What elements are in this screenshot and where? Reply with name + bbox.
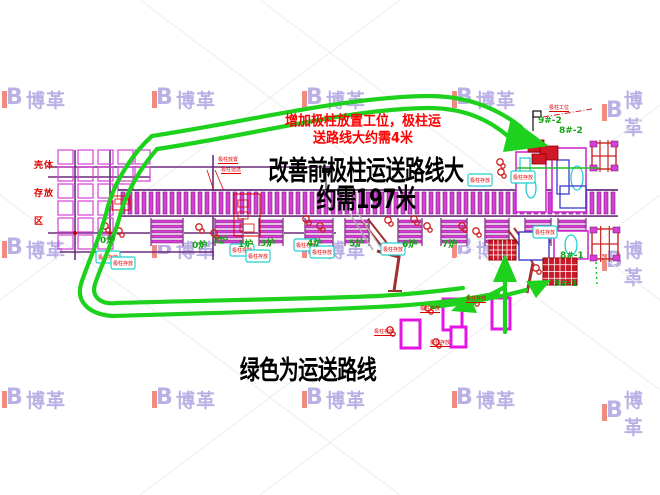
storage-rack-cell — [78, 235, 93, 249]
cyan-tag-text: 极柱存放 — [248, 253, 268, 260]
factory-layout-diagram: B博革B博革B博革B博革B博革B博革B博革B博革B博革B博革B博革B博革B博革B… — [0, 0, 660, 495]
branch-conveyor-stripe — [346, 220, 368, 223]
machine-hatch-pad — [611, 165, 618, 171]
cyan-tag-text: 极柱存放 — [312, 249, 332, 256]
main-conveyor-bar — [205, 192, 209, 214]
furnace-label: 4炉 — [307, 240, 322, 249]
branch-conveyor-stripe — [486, 225, 508, 228]
storage-rack-cell — [58, 184, 73, 198]
branch-conveyor-stripe — [559, 220, 585, 223]
branch-conveyor-stripe — [306, 230, 332, 233]
branch-conveyor-stripe — [152, 230, 182, 233]
main-conveyor-bar — [191, 192, 195, 214]
furnace-label: 3炉 — [260, 240, 275, 249]
main-conveyor-bar — [142, 192, 146, 214]
main-conveyor-bar — [170, 192, 174, 214]
branch-conveyor-stripe — [399, 230, 421, 233]
red-station-block — [532, 154, 546, 164]
micro-annotation: 极柱放置 — [218, 158, 238, 164]
furnace-label: 0炉 — [100, 237, 115, 246]
machine-label: 9#-2 — [538, 117, 562, 126]
branch-conveyor-stripe — [216, 225, 242, 228]
branch-conveyor-stripe — [216, 230, 242, 233]
branch-conveyor-stripe — [260, 220, 282, 223]
swirl-marker-icon — [428, 228, 432, 232]
branch-conveyor-stripe — [486, 235, 508, 238]
title-line2: 约需197米 — [246, 177, 486, 216]
branch-conveyor-stripe — [152, 240, 182, 243]
swirl-marker-icon — [502, 174, 506, 178]
micro-annotation: 极柱存放 — [420, 307, 440, 313]
main-conveyor-bar — [184, 192, 188, 214]
branch-conveyor-stripe — [442, 235, 466, 238]
cyan-tag-text: 极柱存放 — [383, 246, 403, 253]
branch-conveyor-stripe — [260, 225, 282, 228]
main-conveyor-bar — [506, 192, 510, 214]
branch-conveyor-stripe — [442, 225, 466, 228]
furnace-label: 6炉 — [402, 241, 417, 250]
branch-conveyor-stripe — [346, 230, 368, 233]
machine-label: 8#-2 — [559, 127, 583, 136]
branch-conveyor-stripe — [216, 220, 242, 223]
storage-rack-cell — [58, 167, 73, 181]
top-annotation-line2: 送路线大约需4米 — [248, 126, 478, 147]
main-conveyor-bar — [163, 192, 167, 214]
branch-conveyor-stripe — [559, 225, 585, 228]
main-conveyor-bar — [590, 192, 594, 214]
furnace-label: 7炉 — [442, 241, 457, 250]
main-conveyor-bar — [198, 192, 202, 214]
storage-area-label-1: 壳体 — [34, 162, 54, 171]
route-arrowhead — [526, 280, 551, 298]
main-conveyor-bar — [226, 192, 230, 214]
micro-annotation: 极柱工位 — [549, 106, 569, 112]
branch-conveyor-stripe — [526, 220, 550, 223]
main-conveyor-bar — [240, 192, 244, 214]
micro-annotation: 极柱运送 — [221, 168, 241, 174]
micro-annotation: 极柱存放 — [466, 297, 486, 303]
main-conveyor-bar — [177, 192, 181, 214]
diagram-canvas: 极柱存放极柱存放极柱存放极柱存放极柱存放极柱存放极柱存放极柱存放极柱存放极柱存放 — [0, 0, 660, 495]
transfer-arm-elbow — [377, 251, 399, 291]
storage-area-label-3: 区 — [34, 218, 44, 227]
machine-hatch-pad — [590, 141, 597, 147]
branch-conveyor-stripe — [260, 235, 282, 238]
machine-label: 9#-1 — [554, 280, 578, 289]
route-dashed-spur — [596, 262, 597, 287]
swirl-marker-icon — [477, 233, 481, 237]
main-conveyor-bar — [135, 192, 139, 214]
storage-rack-cell — [78, 218, 93, 232]
swirl-marker-icon — [501, 164, 505, 168]
main-conveyor-bar — [604, 192, 608, 214]
machine-hatch-pad — [590, 255, 597, 261]
machine-hatch-pad — [611, 141, 618, 147]
branch-conveyor-stripe — [399, 235, 421, 238]
cyan-tag-text: 极柱存放 — [513, 174, 533, 181]
swirl-marker-icon — [537, 270, 541, 274]
storage-rack-cell — [78, 150, 93, 164]
red-node — [73, 231, 77, 235]
machine-hatch-pad — [590, 227, 597, 233]
main-conveyor-bar — [219, 192, 223, 214]
main-conveyor-bar — [597, 192, 601, 214]
branch-conveyor-stripe — [260, 230, 282, 233]
branch-conveyor-stripe — [306, 235, 332, 238]
machine-label: 8#-1 — [560, 252, 584, 261]
main-conveyor-bar — [499, 192, 503, 214]
furnace-label: 5炉 — [349, 240, 364, 249]
pallet-box — [401, 320, 420, 348]
branch-conveyor-stripe — [152, 225, 182, 228]
branch-conveyor-stripe — [152, 220, 182, 223]
micro-annotation: 极柱存放 — [430, 341, 450, 347]
transport-route-line — [117, 288, 463, 303]
furnace-label: 2炉 — [213, 237, 228, 246]
branch-conveyor-stripe — [486, 220, 508, 223]
bottom-note: 绿色为运送路线 — [228, 349, 388, 387]
pallet-box — [492, 298, 510, 329]
machine-hatch-pad — [613, 255, 620, 261]
main-conveyor-bar — [156, 192, 160, 214]
swirl-marker-icon — [389, 222, 393, 226]
storage-rack-cell — [58, 150, 73, 164]
branch-conveyor-stripe — [486, 230, 508, 233]
pallet-box — [451, 327, 466, 347]
furnace-label: 1炉 — [238, 241, 253, 250]
main-conveyor-bar — [611, 192, 615, 214]
storage-area-label-2: 存放 — [34, 190, 54, 199]
main-conveyor-bar — [212, 192, 216, 214]
furnace-label: 0炉 — [192, 242, 207, 251]
machine-hatch-pad — [613, 227, 620, 233]
storage-rack-cell — [58, 218, 73, 232]
storage-rack-cell — [78, 167, 93, 181]
main-conveyor-bar — [492, 192, 496, 214]
storage-rack-cell — [58, 201, 73, 215]
storage-rack-cell — [78, 184, 93, 198]
cyan-tag-text: 极柱存放 — [535, 229, 555, 236]
storage-rack-cell — [78, 201, 93, 215]
micro-annotation: 极柱存放 — [374, 330, 394, 336]
main-conveyor-bar — [149, 192, 153, 214]
branch-conveyor-stripe — [152, 235, 182, 238]
cyan-tag-text: 极柱存放 — [113, 260, 133, 267]
